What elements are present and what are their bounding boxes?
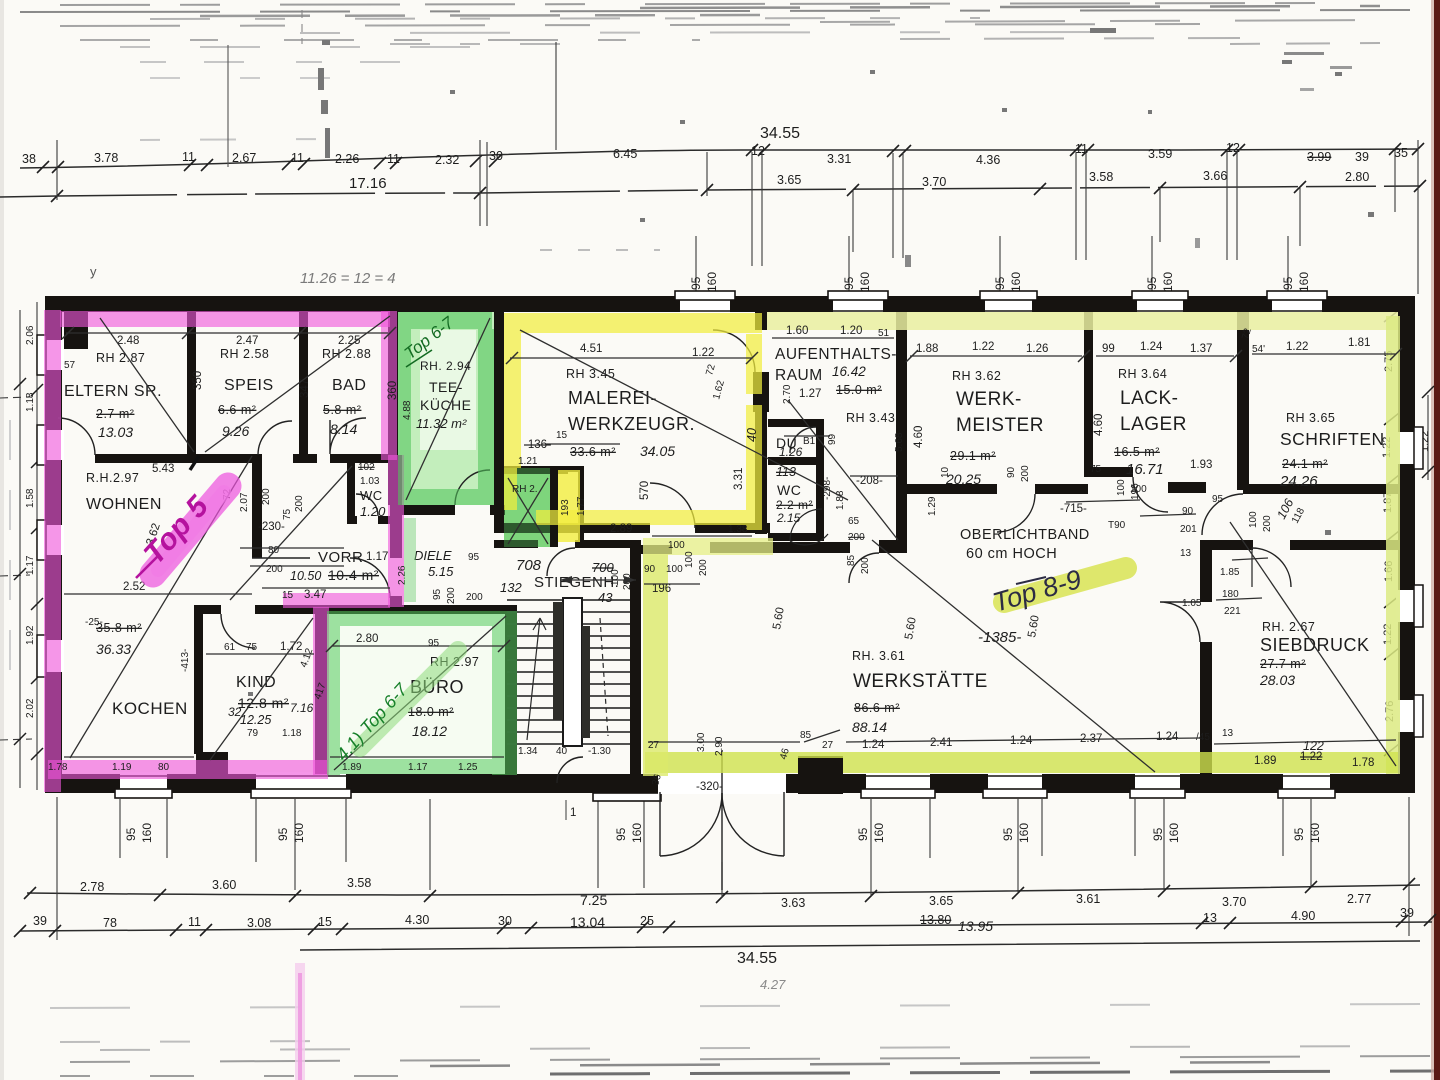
svg-text:24.1 m²: 24.1 m² [1282, 457, 1328, 471]
svg-text:2.89: 2.89 [610, 523, 632, 535]
svg-text:13: 13 [1180, 548, 1192, 559]
svg-text:15: 15 [556, 430, 568, 441]
svg-text:160: 160 [1308, 823, 1322, 843]
svg-text:78: 78 [103, 916, 117, 930]
svg-text:180: 180 [1222, 589, 1239, 600]
svg-text:18.0 m²: 18.0 m² [408, 705, 454, 719]
svg-text:221: 221 [1224, 606, 1241, 617]
svg-text:1.89: 1.89 [1254, 755, 1276, 767]
svg-text:DIELE: DIELE [414, 548, 452, 563]
svg-text:2.07: 2.07 [239, 492, 250, 512]
svg-text:5.15: 5.15 [428, 564, 454, 579]
svg-text:88.14: 88.14 [852, 719, 887, 735]
svg-text:28.03: 28.03 [1259, 672, 1295, 688]
svg-text:5.8 m²: 5.8 m² [323, 403, 361, 417]
svg-text:LAGER: LAGER [1120, 414, 1187, 435]
svg-text:2.70: 2.70 [782, 384, 793, 404]
svg-text:1.92: 1.92 [25, 625, 36, 645]
svg-text:160: 160 [858, 272, 872, 292]
svg-text:95: 95 [468, 552, 480, 563]
svg-text:6.6 m²: 6.6 m² [218, 403, 256, 417]
svg-text:132: 132 [500, 580, 522, 595]
svg-text:1.81: 1.81 [1348, 337, 1370, 349]
svg-text:RH 3.62: RH 3.62 [952, 369, 1001, 383]
svg-text:38: 38 [22, 152, 36, 166]
svg-text:15: 15 [318, 915, 332, 929]
svg-text:11: 11 [291, 151, 304, 165]
svg-text:200: 200 [848, 532, 865, 543]
svg-text:3.31: 3.31 [733, 468, 745, 490]
svg-text:201: 201 [1180, 524, 1197, 535]
svg-text:2.48: 2.48 [117, 335, 139, 347]
svg-text:95: 95 [993, 276, 1007, 290]
svg-text:95: 95 [842, 276, 856, 290]
svg-text:B1: B1 [803, 436, 816, 447]
svg-text:1.20: 1.20 [360, 504, 386, 519]
svg-text:1.18: 1.18 [282, 728, 302, 739]
svg-text:40: 40 [556, 746, 568, 757]
svg-text:3.59: 3.59 [1148, 147, 1172, 161]
svg-text:708: 708 [516, 557, 542, 574]
svg-text:200: 200 [261, 488, 272, 505]
svg-text:12: 12 [751, 144, 765, 158]
svg-text:95: 95 [124, 827, 138, 841]
svg-text:95: 95 [1281, 276, 1295, 290]
svg-text:3.58: 3.58 [1089, 170, 1113, 184]
svg-text:200: 200 [1020, 465, 1031, 482]
svg-text:80: 80 [158, 762, 170, 773]
svg-text:11: 11 [188, 915, 201, 929]
svg-text:12.25: 12.25 [240, 713, 271, 727]
svg-text:18.12: 18.12 [412, 723, 447, 739]
svg-text:95: 95 [1145, 276, 1159, 290]
svg-text:2.80: 2.80 [1345, 170, 1369, 184]
svg-text:1.34: 1.34 [518, 746, 538, 757]
svg-text:160: 160 [872, 823, 886, 843]
svg-text:2.90: 2.90 [714, 736, 725, 756]
svg-text:100: 100 [1130, 484, 1147, 495]
svg-text:1.78: 1.78 [48, 762, 68, 773]
svg-text:95: 95 [276, 827, 290, 841]
svg-text:3.65: 3.65 [777, 173, 801, 187]
svg-text:100: 100 [1248, 511, 1259, 528]
svg-text:200: 200 [446, 587, 457, 604]
svg-text:75: 75 [282, 508, 293, 520]
svg-text:25: 25 [640, 914, 654, 928]
svg-text:95: 95 [432, 588, 443, 600]
svg-text:2.06: 2.06 [25, 325, 36, 345]
svg-text:1.03: 1.03 [360, 476, 380, 487]
svg-text:95: 95 [1001, 827, 1015, 841]
svg-text:10.50: 10.50 [290, 569, 321, 583]
svg-text:3.66: 3.66 [1203, 169, 1227, 183]
svg-text:1.22: 1.22 [972, 341, 994, 353]
svg-text:36.33: 36.33 [96, 641, 131, 657]
svg-text:13: 13 [1203, 911, 1217, 925]
svg-text:4.30: 4.30 [405, 913, 429, 927]
svg-text:2.15: 2.15 [776, 511, 801, 525]
svg-text:100: 100 [684, 551, 695, 568]
svg-text:75: 75 [246, 642, 258, 653]
svg-text:1.78: 1.78 [1352, 757, 1374, 769]
svg-text:RH. 3.61: RH. 3.61 [852, 649, 905, 663]
svg-text:1.27: 1.27 [799, 388, 821, 400]
svg-text:4.51: 4.51 [580, 343, 602, 355]
svg-text:3.99: 3.99 [1307, 150, 1331, 164]
svg-text:RH 2.87: RH 2.87 [96, 351, 145, 365]
svg-text:RH. 2.67: RH. 2.67 [1262, 620, 1315, 634]
svg-text:65: 65 [848, 516, 860, 527]
svg-text:3.70: 3.70 [922, 175, 946, 189]
svg-text:1.25: 1.25 [458, 762, 478, 773]
svg-text:BAD: BAD [332, 377, 366, 394]
svg-text:16.42: 16.42 [832, 364, 866, 379]
svg-text:2.80: 2.80 [356, 633, 378, 645]
svg-text:16.5 m²: 16.5 m² [1114, 445, 1160, 459]
svg-text:95: 95 [856, 827, 870, 841]
svg-text:40: 40 [745, 428, 759, 442]
svg-text:1.21: 1.21 [518, 456, 538, 467]
svg-text:10.4 m²: 10.4 m² [328, 567, 379, 583]
svg-text:1.22: 1.22 [1286, 341, 1308, 353]
svg-text:61: 61 [224, 642, 236, 653]
svg-text:2.26: 2.26 [335, 152, 359, 166]
svg-text:39: 39 [1400, 906, 1414, 920]
svg-text:79: 79 [247, 728, 259, 739]
svg-text:WERKSTÄTTE: WERKSTÄTTE [853, 671, 988, 692]
svg-text:1.29: 1.29 [927, 496, 938, 516]
svg-text:15.0 m²: 15.0 m² [836, 383, 882, 397]
svg-text:R.H.2.97: R.H.2.97 [86, 471, 139, 485]
svg-text:3.63: 3.63 [781, 896, 805, 910]
svg-text:193: 193 [560, 499, 571, 516]
svg-text:2.47: 2.47 [236, 335, 258, 347]
svg-text:-320-: -320- [696, 781, 723, 793]
svg-text:100: 100 [666, 564, 683, 575]
svg-text:15: 15 [282, 590, 294, 601]
svg-text:3.47: 3.47 [304, 589, 326, 601]
svg-text:200: 200 [294, 495, 305, 512]
svg-text:AUFENTHALTS-: AUFENTHALTS- [775, 346, 897, 363]
svg-text:3.08: 3.08 [247, 916, 271, 930]
svg-text:WC: WC [777, 482, 801, 498]
svg-text:1.58: 1.58 [25, 488, 36, 508]
svg-text:3.60: 3.60 [212, 878, 236, 892]
svg-text:KÜCHE: KÜCHE [420, 396, 472, 413]
svg-text:1.38: 1.38 [728, 524, 748, 535]
svg-text:24.26: 24.26 [1279, 473, 1318, 490]
svg-text:-298-: -298- [822, 477, 833, 500]
svg-text:8.14: 8.14 [330, 421, 357, 437]
svg-text:95: 95 [689, 276, 703, 290]
svg-text:2.77: 2.77 [1347, 892, 1371, 906]
svg-text:5.43: 5.43 [152, 463, 174, 475]
svg-text:RH 3.43: RH 3.43 [846, 411, 895, 425]
svg-text:160: 160 [1161, 272, 1175, 292]
svg-text:1.18: 1.18 [25, 392, 36, 412]
svg-text:1.20: 1.20 [840, 325, 862, 337]
svg-text:75: 75 [1090, 464, 1102, 475]
svg-text:95: 95 [1212, 494, 1224, 505]
svg-text:1.24: 1.24 [1156, 731, 1179, 743]
svg-text:2.52: 2.52 [123, 581, 145, 593]
svg-text:95: 95 [1151, 827, 1165, 841]
svg-text:-136-: -136- [524, 439, 551, 451]
svg-text:4.60: 4.60 [913, 426, 925, 448]
svg-text:570: 570 [639, 481, 651, 500]
svg-text:1.24: 1.24 [1140, 341, 1163, 353]
svg-text:STIEGENH.: STIEGENH. [534, 574, 619, 591]
svg-text:32: 32 [228, 705, 242, 719]
svg-text:1.17: 1.17 [366, 551, 388, 563]
svg-text:11: 11 [182, 150, 195, 164]
svg-text:OBERLICHTBAND: OBERLICHTBAND [960, 527, 1090, 543]
svg-text:MEISTER: MEISTER [956, 415, 1044, 436]
svg-text:200: 200 [466, 592, 483, 603]
svg-text:95: 95 [614, 827, 628, 841]
svg-text:RH 2.88: RH 2.88 [322, 347, 371, 361]
svg-text:12.8 m²: 12.8 m² [238, 695, 289, 711]
svg-text:WERKZEUGR.: WERKZEUGR. [568, 414, 695, 434]
svg-text:85: 85 [800, 730, 812, 741]
svg-text:200: 200 [1262, 515, 1273, 532]
svg-text:1.26: 1.26 [779, 445, 803, 459]
svg-text:33.6 m²: 33.6 m² [570, 445, 616, 459]
svg-text:RH 3.65: RH 3.65 [1286, 411, 1335, 425]
svg-text:160: 160 [705, 272, 719, 292]
svg-text:10: 10 [940, 466, 951, 478]
svg-text:39: 39 [33, 914, 47, 928]
svg-text:-230-: -230- [258, 521, 285, 533]
svg-text:4.27: 4.27 [760, 977, 786, 992]
svg-text:43: 43 [598, 590, 613, 605]
svg-text:RH 2.: RH 2. [512, 484, 538, 495]
svg-text:35: 35 [1394, 146, 1408, 160]
svg-text:1.77: 1.77 [576, 496, 587, 516]
svg-text:SPEIS: SPEIS [224, 377, 274, 394]
svg-text:11: 11 [387, 152, 400, 166]
svg-text:90: 90 [1182, 506, 1194, 517]
svg-text:160: 160 [1297, 272, 1311, 292]
svg-text:1.88: 1.88 [835, 490, 846, 510]
svg-text:1.85: 1.85 [1220, 567, 1240, 578]
svg-text:160: 160 [1167, 823, 1181, 843]
svg-text:3.65: 3.65 [929, 894, 953, 908]
svg-text:1.37: 1.37 [1190, 343, 1212, 355]
svg-text:4.90: 4.90 [1291, 909, 1315, 923]
svg-text:2.32: 2.32 [435, 153, 459, 167]
svg-text:86.6 m²: 86.6 m² [854, 701, 900, 715]
svg-text:27: 27 [822, 740, 834, 751]
svg-text:350: 350 [192, 371, 204, 390]
svg-text:160: 160 [1017, 823, 1031, 843]
svg-text:WERK-: WERK- [956, 389, 1022, 410]
svg-text:2.02: 2.02 [25, 698, 36, 718]
svg-text:3.31: 3.31 [827, 152, 851, 166]
svg-text:1.17: 1.17 [408, 762, 428, 773]
svg-text:2.78: 2.78 [80, 880, 104, 894]
svg-text:27.7 m²: 27.7 m² [1260, 657, 1306, 671]
svg-text:13.03: 13.03 [98, 424, 133, 440]
svg-text:160: 160 [140, 823, 154, 843]
svg-text:3.58: 3.58 [347, 876, 371, 890]
svg-text:WOHNEN: WOHNEN [86, 496, 162, 513]
svg-text:RH 3.64: RH 3.64 [1118, 367, 1167, 381]
svg-text:17.16: 17.16 [349, 175, 387, 192]
svg-text:y: y [90, 264, 97, 279]
svg-text:KOCHEN: KOCHEN [112, 699, 188, 718]
svg-text:1.88: 1.88 [916, 343, 938, 355]
svg-text:35.8 m²: 35.8 m² [96, 621, 142, 635]
svg-text:160: 160 [630, 823, 644, 843]
svg-text:13: 13 [1222, 728, 1234, 739]
svg-text:2.41: 2.41 [930, 737, 952, 749]
svg-text:13.80: 13.80 [920, 913, 951, 927]
svg-text:4.60: 4.60 [1093, 414, 1105, 436]
svg-text:11.26 = 12 = 4: 11.26 = 12 = 4 [300, 270, 396, 287]
svg-text:1.93: 1.93 [1190, 459, 1212, 471]
svg-text:30: 30 [498, 914, 512, 928]
svg-text:200: 200 [860, 557, 871, 574]
svg-text:SIEBDRUCK: SIEBDRUCK [1260, 635, 1370, 655]
svg-text:12: 12 [1226, 141, 1240, 155]
svg-text:102: 102 [358, 462, 375, 473]
svg-text:RH 3.45: RH 3.45 [566, 367, 615, 381]
svg-text:360: 360 [387, 381, 399, 400]
svg-text:7.25: 7.25 [580, 892, 607, 908]
svg-text:LACK-: LACK- [1120, 388, 1178, 409]
svg-text:100: 100 [1116, 479, 1127, 496]
svg-text:1.24: 1.24 [1010, 735, 1033, 747]
svg-text:99: 99 [1102, 343, 1115, 355]
svg-text:34.05: 34.05 [640, 443, 675, 459]
svg-text:95: 95 [1292, 827, 1306, 841]
svg-text:1.26: 1.26 [1026, 343, 1048, 355]
svg-text:60 cm HOCH: 60 cm HOCH [966, 546, 1057, 562]
svg-text:5.68: 5.68 [894, 432, 905, 452]
svg-text:4.36: 4.36 [976, 153, 1000, 167]
svg-text:WC: WC [360, 488, 383, 503]
svg-text:2.2 m²: 2.2 m² [776, 498, 813, 512]
svg-text:1.17: 1.17 [25, 555, 36, 575]
svg-text:196: 196 [652, 583, 671, 595]
svg-text:1.60: 1.60 [786, 325, 808, 337]
svg-text:2.7 m²: 2.7 m² [96, 407, 134, 421]
svg-text:RH 2.58: RH 2.58 [220, 347, 269, 361]
svg-text:MALEREI-: MALEREI- [568, 388, 657, 408]
svg-text:30: 30 [489, 149, 503, 163]
svg-text:99: 99 [827, 433, 838, 445]
svg-text:7.16: 7.16 [290, 701, 314, 715]
svg-text:-715-: -715- [1060, 503, 1087, 515]
svg-text:160: 160 [292, 823, 306, 843]
svg-text:RH. 2.94: RH. 2.94 [420, 359, 471, 373]
svg-text:85: 85 [846, 554, 857, 566]
svg-text:1.19: 1.19 [112, 762, 132, 773]
svg-text:29.1 m²: 29.1 m² [950, 449, 996, 463]
svg-text:3.78: 3.78 [94, 151, 118, 165]
svg-text:34.55: 34.55 [760, 125, 800, 142]
svg-text:-1.30: -1.30 [588, 746, 611, 757]
svg-text:13.95: 13.95 [958, 918, 993, 934]
svg-text:VORR.: VORR. [318, 549, 368, 566]
svg-text:-413-: -413- [180, 649, 191, 672]
svg-text:-208-: -208- [856, 475, 883, 487]
svg-text:200: 200 [698, 559, 709, 576]
svg-text:1.05: 1.05 [1182, 598, 1202, 609]
svg-text:39: 39 [1355, 150, 1369, 164]
svg-text:100: 100 [610, 569, 621, 586]
svg-text:95: 95 [428, 638, 440, 649]
svg-text:T90: T90 [1108, 520, 1126, 531]
svg-text:16.71: 16.71 [1126, 461, 1164, 478]
svg-text:4.88: 4.88 [402, 400, 413, 420]
svg-text:160: 160 [1009, 272, 1023, 292]
svg-text:34.55: 34.55 [737, 950, 777, 967]
svg-text:6.45: 6.45 [613, 147, 637, 161]
svg-text:SCHRIFTEN: SCHRIFTEN [1280, 429, 1385, 449]
svg-text:RAUM: RAUM [775, 367, 823, 384]
svg-text:3.70: 3.70 [1222, 895, 1246, 909]
svg-text:90: 90 [644, 564, 656, 575]
svg-text:1.22: 1.22 [692, 347, 714, 359]
svg-text:2.67: 2.67 [232, 151, 256, 165]
svg-text:90: 90 [1006, 466, 1017, 478]
svg-text:57: 57 [64, 360, 76, 371]
svg-text:13.04: 13.04 [570, 914, 605, 930]
svg-text:3.61: 3.61 [1076, 892, 1100, 906]
svg-text:1.24: 1.24 [862, 739, 885, 751]
svg-text:1: 1 [570, 807, 576, 819]
svg-text:100: 100 [668, 540, 685, 551]
